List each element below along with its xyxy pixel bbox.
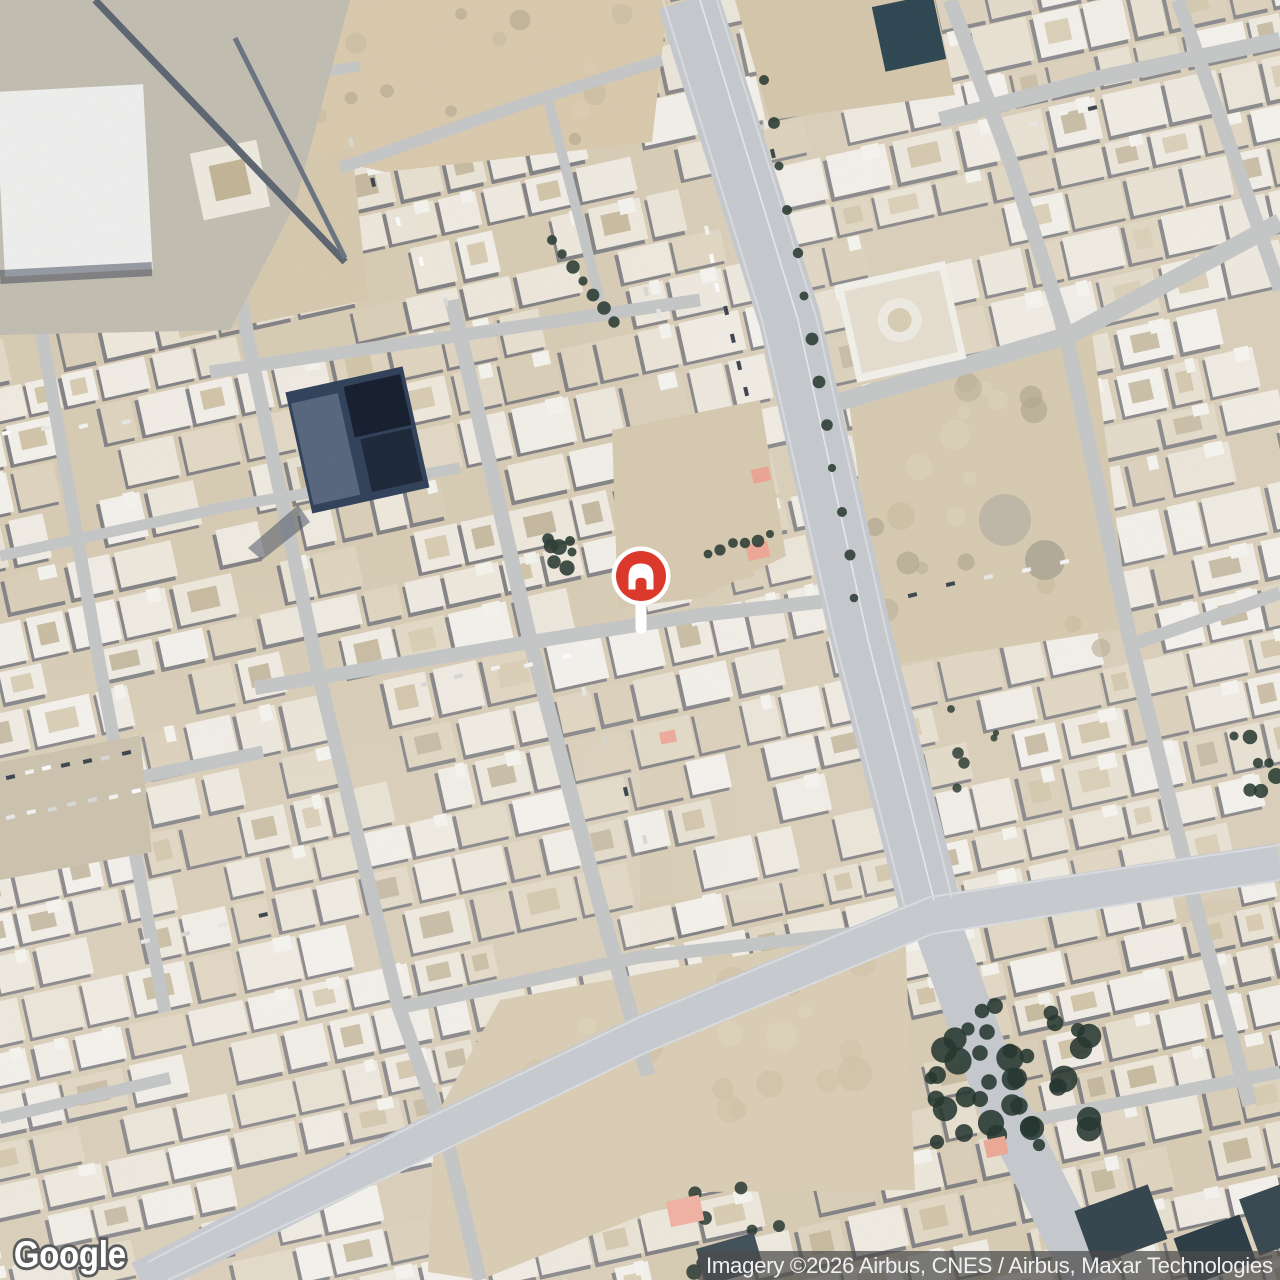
- svg-text:Google: Google: [14, 1234, 126, 1275]
